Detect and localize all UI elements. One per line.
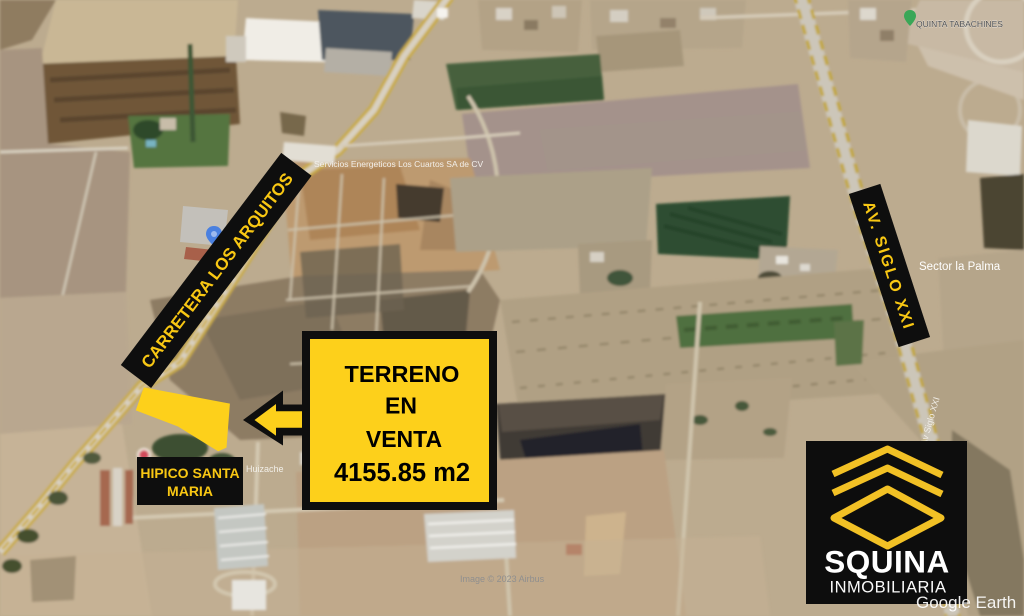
svg-text:4155.85 m2: 4155.85 m2	[334, 459, 470, 487]
svg-text:Image © 2023 Airbus: Image © 2023 Airbus	[460, 574, 545, 584]
svg-text:QUINTA TABACHINES: QUINTA TABACHINES	[916, 19, 1003, 29]
svg-text:Google Earth: Google Earth	[916, 593, 1016, 612]
svg-text:Huizache: Huizache	[246, 464, 284, 474]
svg-text:HIPICO SANTA: HIPICO SANTA	[140, 465, 239, 481]
svg-text:TERRENO: TERRENO	[345, 361, 460, 387]
svg-text:EN: EN	[385, 393, 417, 419]
svg-text:SQUINA: SQUINA	[824, 544, 950, 580]
svg-text:VENTA: VENTA	[366, 426, 442, 452]
svg-text:MARIA: MARIA	[167, 483, 213, 499]
svg-text:Sector la Palma: Sector la Palma	[919, 261, 1001, 273]
svg-text:Servicios Energeticos Los Cuar: Servicios Energeticos Los Cuartos SA de …	[314, 159, 483, 169]
